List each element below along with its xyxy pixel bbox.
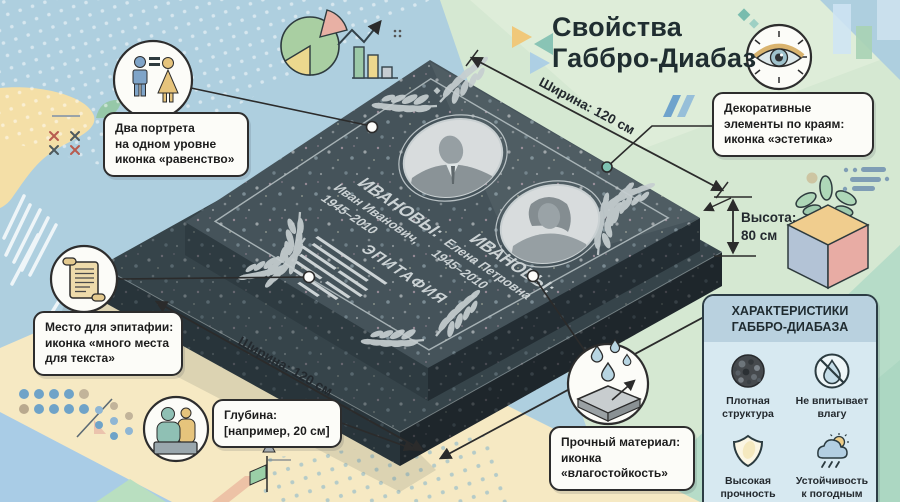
callout-epitaph-line1: Место для эпитафии:: [45, 320, 171, 336]
panel-body: Плотная структура Не впитывает влагу: [704, 342, 876, 502]
panel-item-strength-label: Высокая прочность и долговечность: [706, 475, 790, 502]
page-title-line1: Свойства: [552, 12, 756, 43]
panel-title-line2: ГАББРО-ДИАБАЗА: [708, 320, 872, 336]
weather-icon: [811, 430, 853, 472]
connector-dot-material: [528, 271, 539, 282]
panel-item-no-absorb: Не впитывает влагу: [790, 350, 874, 421]
height-label: Высота:: [741, 210, 796, 225]
callout-epitaph-line3: для текста»: [45, 351, 171, 367]
callout-epitaph: Место для эпитафии: иконка «много места …: [33, 311, 183, 376]
panel-item-dense-label: Плотная структура: [722, 395, 774, 421]
scroll-icon: [51, 246, 117, 312]
no-absorb-icon: [811, 350, 853, 392]
connector-dot-epitaph: [304, 272, 315, 283]
callout-portraits: Два портрета на одном уровне иконка «рав…: [103, 112, 249, 177]
callout-material-line3: «влагостойкость»: [561, 466, 683, 482]
panel-item-dense: Плотная структура: [706, 350, 790, 421]
callout-material-line2: иконка: [561, 451, 683, 467]
page-title: Свойства Габбро-Диабаз: [552, 12, 756, 73]
dense-structure-icon: [727, 350, 769, 392]
callout-portraits-line2: на одном уровне: [115, 137, 237, 153]
panel-header: ХАРАКТЕРИСТИКИ ГАББРО-ДИАБАЗА: [704, 296, 876, 342]
callout-decor-line2: элементы по краям:: [724, 117, 862, 133]
callout-depth-line1: Глубина:: [224, 408, 330, 424]
aesthetics-eye-icon: [747, 25, 811, 89]
characteristics-panel: ХАРАКТЕРИСТИКИ ГАББРО-ДИАБАЗА Плотная ст…: [702, 294, 878, 502]
callout-material: Прочный материал: иконка «влагостойкость…: [549, 426, 695, 491]
connector-dot-portraits: [367, 122, 378, 133]
callout-material-line1: Прочный материал:: [561, 435, 683, 451]
panel-item-no-absorb-label: Не впитывает влагу: [796, 395, 869, 421]
callout-decor: Декоративные элементы по краям: иконка «…: [712, 92, 874, 157]
infographic-stage: ИВАНОВЫ: Иван Иванович, 1945–2010 ИВАНОВ…: [0, 0, 900, 502]
panel-item-strength: Высокая прочность и долговечность: [706, 430, 790, 502]
page-title-line2: Габбро-Диабаз: [552, 43, 756, 74]
callout-depth-line2: [например, 20 см]: [224, 424, 330, 440]
callout-epitaph-line2: иконка «много места: [45, 336, 171, 352]
equality-icon: [114, 41, 192, 119]
height-value: 80 см: [741, 228, 777, 243]
panel-item-weather-label: Устойчивость к погодным условиям: [796, 475, 868, 502]
callout-depth: Глубина: [например, 20 см]: [212, 399, 342, 448]
connector-dot-decor: [602, 162, 612, 172]
callout-decor-line1: Декоративные: [724, 101, 862, 117]
depth-people-icon: [144, 397, 208, 461]
panel-item-weather: Устойчивость к погодным условиям: [790, 430, 874, 502]
callout-decor-line3: иконка «эстетика»: [724, 132, 862, 148]
panel-title-line1: ХАРАКТЕРИСТИКИ: [708, 304, 872, 320]
callout-portraits-line1: Два портрета: [115, 121, 237, 137]
callout-portraits-line3: иконка «равенство»: [115, 152, 237, 168]
shield-icon: [727, 430, 769, 472]
